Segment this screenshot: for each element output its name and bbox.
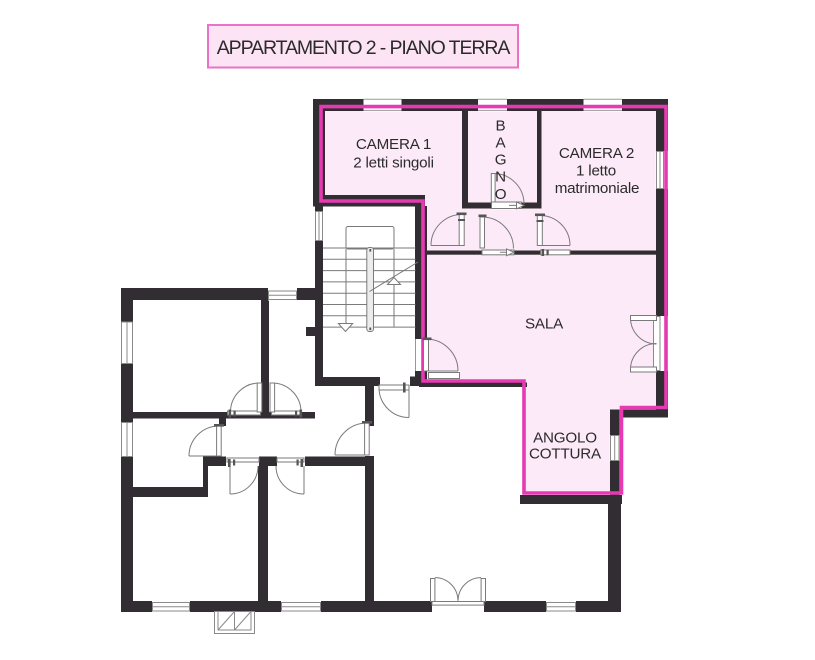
svg-text:ANGOLO: ANGOLO: [533, 430, 597, 447]
svg-text:N: N: [495, 169, 506, 186]
svg-text:1 letto: 1 letto: [576, 163, 616, 180]
svg-text:A: A: [496, 135, 507, 152]
svg-text:SALA: SALA: [525, 316, 564, 333]
svg-text:CAMERA 2: CAMERA 2: [559, 145, 634, 162]
svg-text:COTTURA: COTTURA: [529, 446, 602, 463]
svg-text:B: B: [496, 118, 506, 135]
svg-text:G: G: [495, 152, 507, 169]
svg-text:APPARTAMENTO 2 - PIANO TERRA: APPARTAMENTO 2 - PIANO TERRA: [217, 37, 511, 59]
svg-text:2 letti singoli: 2 letti singoli: [353, 155, 434, 172]
svg-text:CAMERA 1: CAMERA 1: [356, 136, 431, 153]
svg-text:matrimoniale: matrimoniale: [555, 180, 640, 197]
svg-text:O: O: [495, 186, 507, 203]
